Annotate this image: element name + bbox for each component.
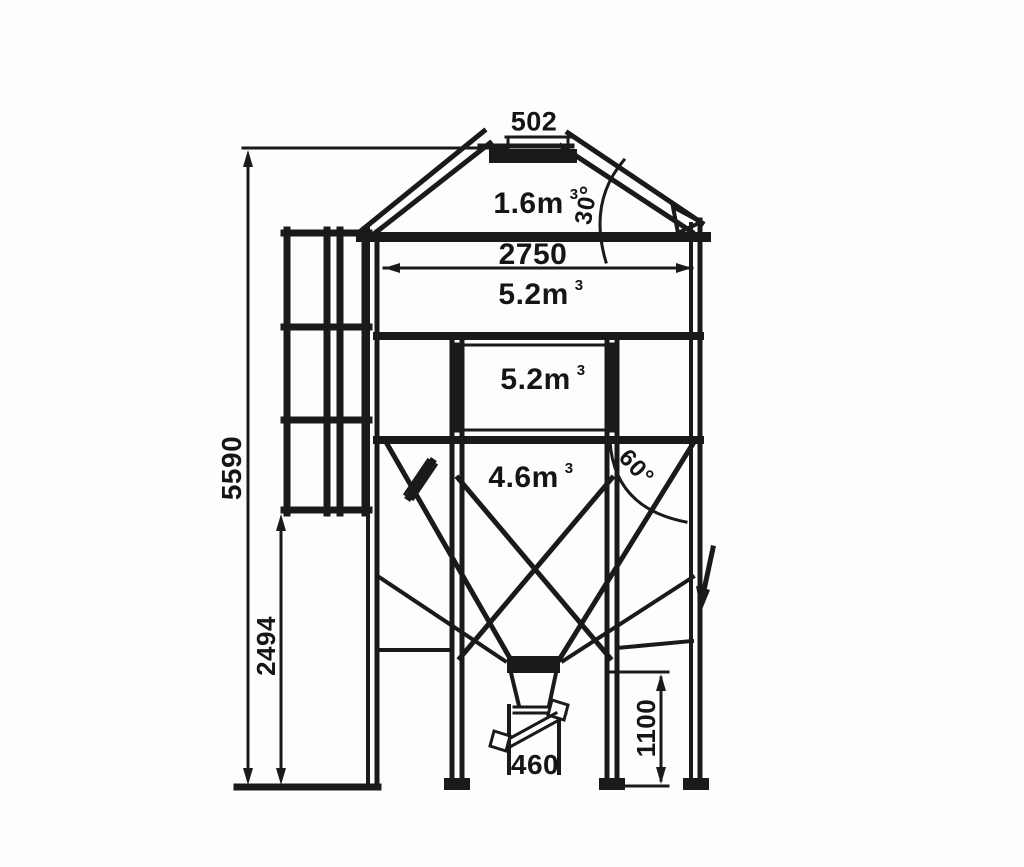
dim-body-width-label: 2750 <box>499 240 568 270</box>
dim-cap-width-label: 502 <box>511 109 558 136</box>
volume-hopper-exponent: 3 <box>565 460 574 477</box>
dim-stand-clearance-label: 2494 <box>253 616 279 676</box>
volume-hopper-label: 4.6m3 <box>488 463 573 493</box>
dim-total-height-lines <box>237 148 508 787</box>
volume-lower-ring-exponent: 3 <box>577 362 586 379</box>
volume-hopper-value: 4.6m <box>488 461 558 494</box>
ladder-cage <box>284 230 369 513</box>
roof-cap <box>489 137 577 163</box>
volume-roof-label: 1.6m3 <box>493 189 578 219</box>
dim-total-height-label: 5590 <box>218 436 246 500</box>
dim-outlet-clearance-label: 1100 <box>633 699 659 757</box>
volume-upper-ring-label: 5.2m3 <box>498 280 583 310</box>
dim-outlet-width-label: 460 <box>511 751 559 779</box>
volume-lower-ring-label: 5.2m3 <box>500 365 585 395</box>
silo-drawing-page: 502 1.6m3 30° 2750 5.2m3 5.2m3 4.6m3 60°… <box>0 0 1024 867</box>
volume-lower-ring-value: 5.2m <box>500 363 570 396</box>
volume-upper-ring-value: 5.2m <box>498 278 568 311</box>
volume-upper-ring-exponent: 3 <box>575 277 584 294</box>
volume-roof-value: 1.6m <box>493 187 563 220</box>
